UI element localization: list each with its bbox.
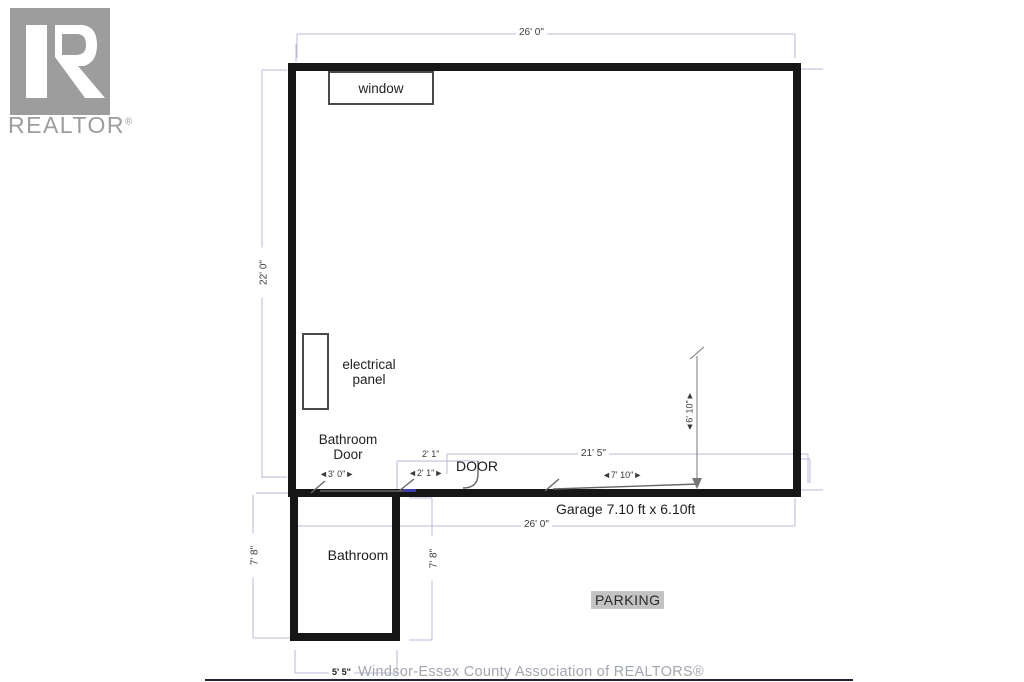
electrical-panel-box bbox=[302, 333, 329, 410]
garage-door-width-dim-label: ◄7' 10"► bbox=[599, 470, 645, 481]
garage-size-label: Garage 7.10 ft x 6.10ft bbox=[556, 501, 695, 517]
bathroom-height-right-dim-label: 7' 8" bbox=[429, 537, 440, 581]
garage-door-height-dim-label: ◄6' 10"► bbox=[685, 381, 696, 443]
garage-interior-width-dim-label: 21' 5" bbox=[578, 448, 609, 459]
bathroom-room-label: Bathroom bbox=[312, 547, 404, 563]
bathroom-width-dim-label: 5' 5" bbox=[329, 667, 354, 678]
electrical-panel-label: electrical panel bbox=[334, 357, 404, 387]
bathroom-height-left-dim-label: 7' 8" bbox=[250, 534, 261, 578]
door-symbols-layer bbox=[0, 0, 1024, 682]
bathroom-door-leaf bbox=[311, 479, 414, 493]
bottom-width-dim-label: 26' 0" bbox=[521, 519, 552, 530]
floorplan-page: REALTOR® window bbox=[0, 0, 1024, 682]
window-label: window bbox=[358, 81, 403, 96]
entry-door-width-top-dim-label: 2' 1" bbox=[419, 449, 442, 460]
left-height-dim-label: 22' 0" bbox=[259, 248, 270, 298]
parking-label: PARKING bbox=[591, 591, 664, 609]
wall-opening-mark bbox=[403, 489, 416, 492]
top-width-dim-label: 26' 0" bbox=[516, 27, 547, 38]
bathroom-door-label: Bathroom Door bbox=[312, 432, 384, 462]
window-box: window bbox=[328, 71, 434, 105]
association-watermark: Windsor-Essex County Association of REAL… bbox=[358, 664, 704, 680]
footer-divider-line bbox=[205, 679, 853, 681]
bathroom-door-width-dim-label: ◄3' 0"► bbox=[316, 469, 357, 480]
door-label: DOOR bbox=[456, 458, 498, 474]
entry-door-width-dim-label: ◄2' 1"► bbox=[405, 468, 446, 479]
